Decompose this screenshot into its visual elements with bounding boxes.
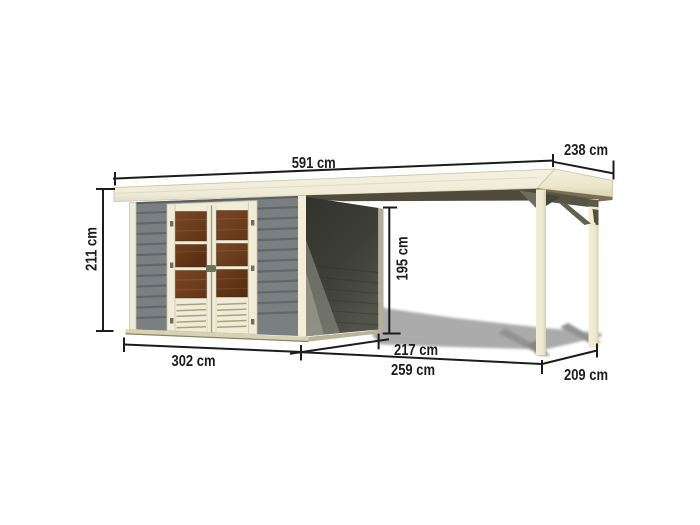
svg-text:209 cm: 209 cm: [564, 367, 608, 384]
svg-text:302 cm: 302 cm: [172, 353, 216, 370]
svg-text:195 cm: 195 cm: [395, 237, 412, 281]
svg-text:259 cm: 259 cm: [391, 362, 435, 379]
svg-text:217 cm: 217 cm: [394, 342, 438, 359]
svg-text:238 cm: 238 cm: [564, 142, 608, 159]
svg-text:211 cm: 211 cm: [84, 227, 101, 271]
svg-text:591 cm: 591 cm: [292, 155, 336, 172]
